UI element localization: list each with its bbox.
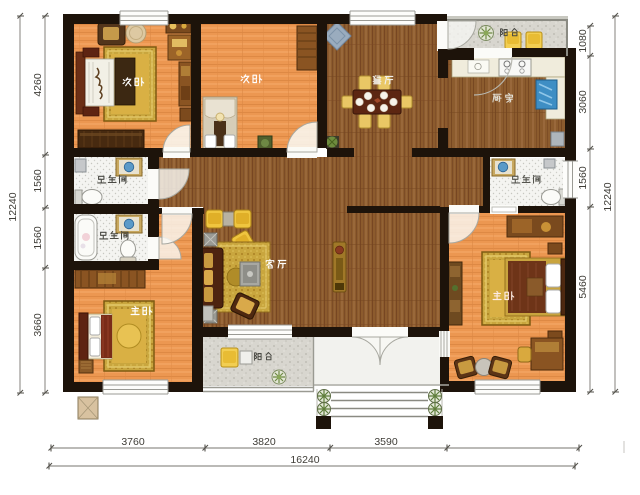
svg-text:1560: 1560 [32, 226, 44, 250]
svg-text:3660: 3660 [32, 313, 44, 337]
svg-text:3820: 3820 [252, 436, 276, 448]
svg-text:3590: 3590 [374, 436, 398, 448]
svg-text:3760: 3760 [121, 436, 145, 448]
svg-text:1080: 1080 [577, 29, 589, 53]
svg-text:1560: 1560 [32, 169, 44, 193]
svg-text:5460: 5460 [577, 275, 589, 299]
svg-text:4260: 4260 [32, 73, 44, 97]
svg-text:12240: 12240 [602, 182, 614, 211]
svg-text:3060: 3060 [577, 90, 589, 114]
svg-text:12240: 12240 [7, 192, 19, 221]
svg-text:1560: 1560 [577, 166, 589, 190]
svg-text:16240: 16240 [290, 454, 319, 466]
